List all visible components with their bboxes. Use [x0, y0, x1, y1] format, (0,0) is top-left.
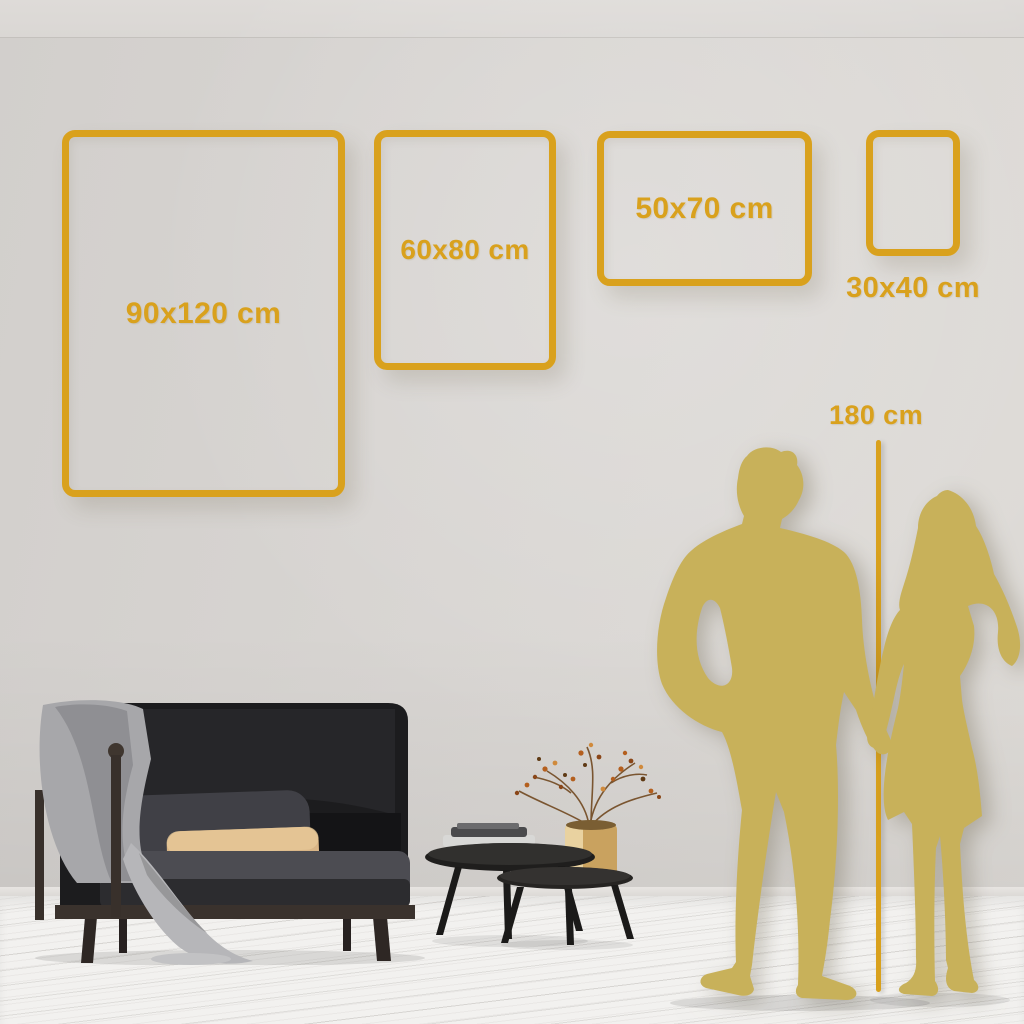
- couple-shadow: [870, 993, 1010, 1007]
- man-silhouette-icon: [657, 447, 891, 1000]
- nesting-tables-icon: [415, 735, 685, 950]
- frame-90x120: 90x120 cm: [62, 130, 345, 497]
- frame-size-label: 60x80 cm: [400, 234, 529, 266]
- size-guide-scene: 90x120 cm 60x80 cm 50x70 cm 30x40 cm 180…: [0, 0, 1024, 1024]
- frame-size-label: 90x120 cm: [126, 297, 281, 331]
- couple-silhouette: [650, 440, 1024, 1015]
- frame-60x80: 60x80 cm: [374, 130, 556, 370]
- frame-size-label: 50x70 cm: [635, 192, 773, 226]
- frame-30x40: [866, 130, 960, 256]
- frame-50x70: 50x70 cm: [597, 131, 812, 286]
- right-table: [497, 867, 634, 945]
- woman-silhouette-icon: [867, 490, 1020, 996]
- sofa-icon: [15, 695, 435, 965]
- frame-30x40-label: 30x40 cm: [828, 272, 998, 305]
- height-marker-label: 180 cm: [806, 400, 946, 431]
